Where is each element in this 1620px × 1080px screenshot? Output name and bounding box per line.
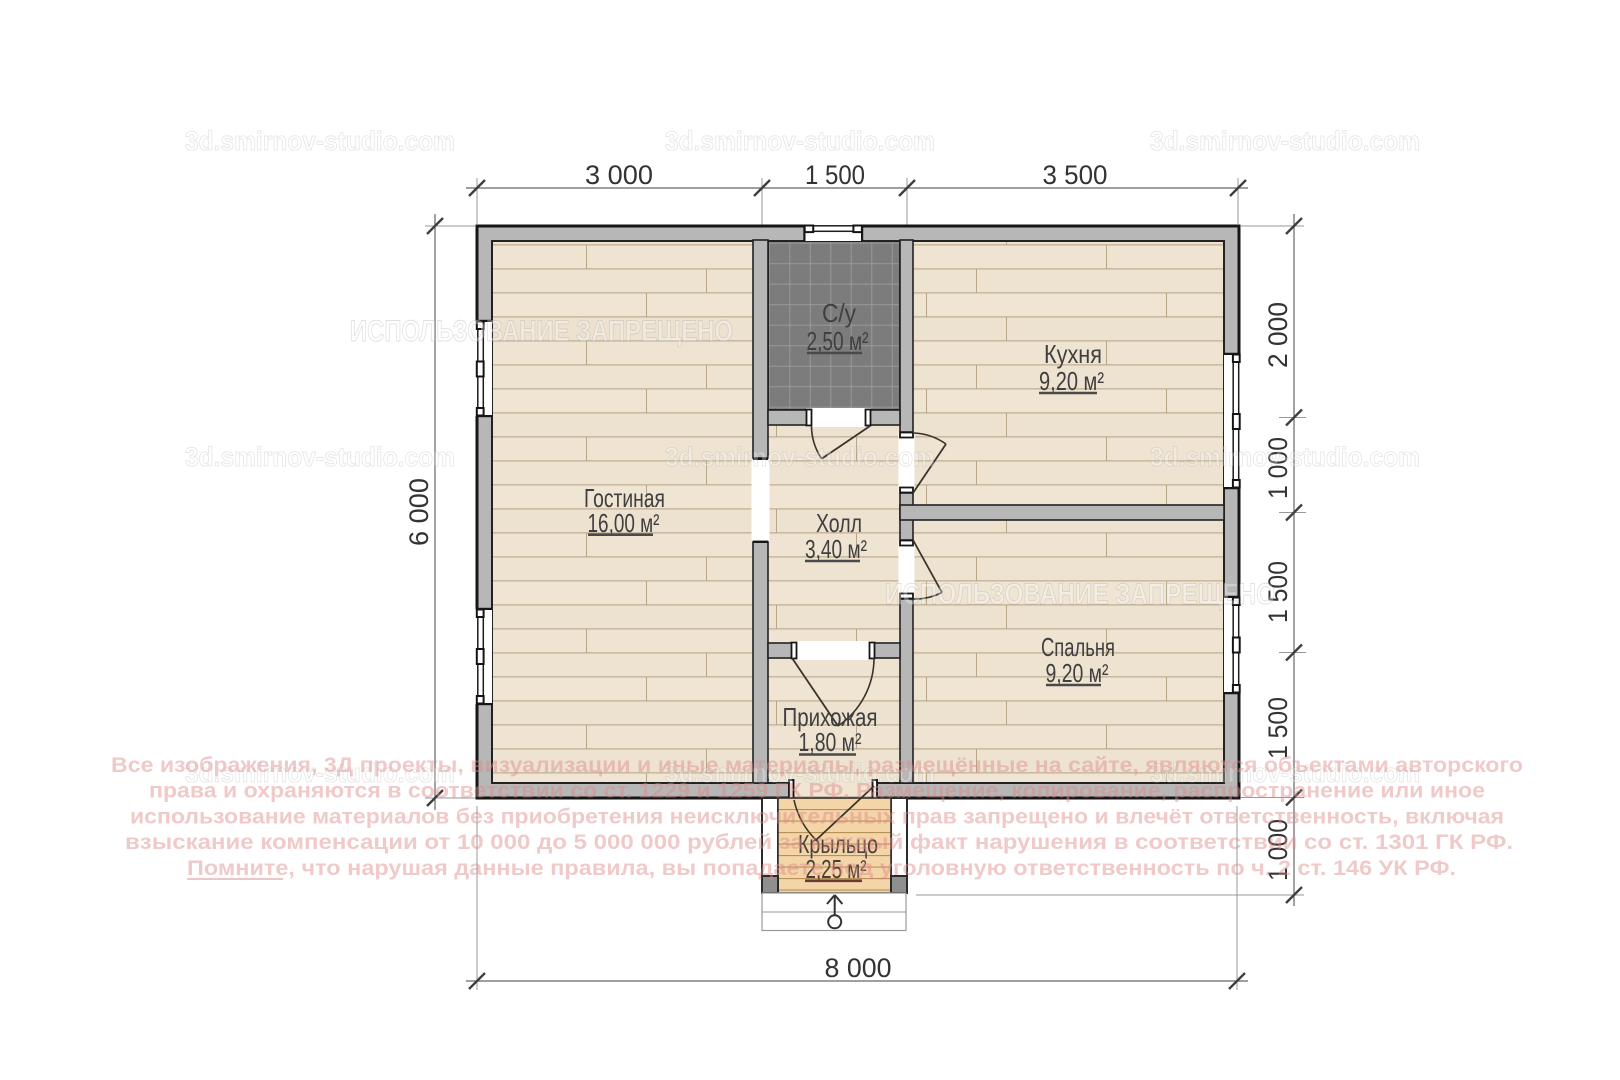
svg-text:3 000: 3 000 xyxy=(585,160,653,190)
svg-text:3 500: 3 500 xyxy=(1043,160,1108,190)
svg-text:С/у: С/у xyxy=(822,298,856,328)
svg-text:9,20 м²: 9,20 м² xyxy=(1039,366,1104,396)
svg-text:Кухня: Кухня xyxy=(1044,339,1102,369)
svg-text:1 500: 1 500 xyxy=(1263,697,1293,759)
svg-text:3d.smirnov-studio.com: 3d.smirnov-studio.com xyxy=(185,126,455,156)
svg-text:ИСПОЛЬЗОВАНИЕ ЗАПРЕЩЕНО: ИСПОЛЬЗОВАНИЕ ЗАПРЕЩЕНО xyxy=(885,578,1275,611)
svg-text:ИСПОЛЬЗОВАНИЕ ЗАПРЕЩЕНО: ИСПОЛЬЗОВАНИЕ ЗАПРЕЩЕНО xyxy=(350,315,733,348)
svg-text:6 000: 6 000 xyxy=(404,478,434,546)
svg-text:9,20 м²: 9,20 м² xyxy=(1046,658,1109,688)
svg-text:8 000: 8 000 xyxy=(825,953,892,983)
svg-text:2 000: 2 000 xyxy=(1263,302,1293,368)
svg-text:2,50 м²: 2,50 м² xyxy=(807,326,869,356)
svg-text:3,40 м²: 3,40 м² xyxy=(805,534,867,564)
svg-text:использование материалов без п: использование материалов без приобретени… xyxy=(130,804,1504,828)
svg-text:взыскание компенсации от 10 00: взыскание компенсации от 10 000 до 5 000… xyxy=(125,830,1513,854)
svg-text:права и охраняются в соответст: права и охраняются в соответствии со ст.… xyxy=(149,779,1485,803)
svg-text:3d.smirnov-studio.com: 3d.smirnov-studio.com xyxy=(665,126,935,156)
svg-text:3d.smirnov-studio.com: 3d.smirnov-studio.com xyxy=(665,442,935,472)
svg-text:3d.smirnov-studio.com: 3d.smirnov-studio.com xyxy=(1150,126,1420,156)
svg-text:Помните, что нарушая данные пр: Помните, что нарушая данные правила, вы … xyxy=(187,856,1456,880)
svg-text:1 500: 1 500 xyxy=(805,160,865,190)
svg-text:3d.smirnov-studio.com: 3d.smirnov-studio.com xyxy=(185,442,455,472)
svg-text:3d.smirnov-studio.com: 3d.smirnov-studio.com xyxy=(1150,442,1420,472)
svg-text:Все изображения, 3Д проекты, в: Все изображения, 3Д проекты, визуализаци… xyxy=(111,753,1523,777)
